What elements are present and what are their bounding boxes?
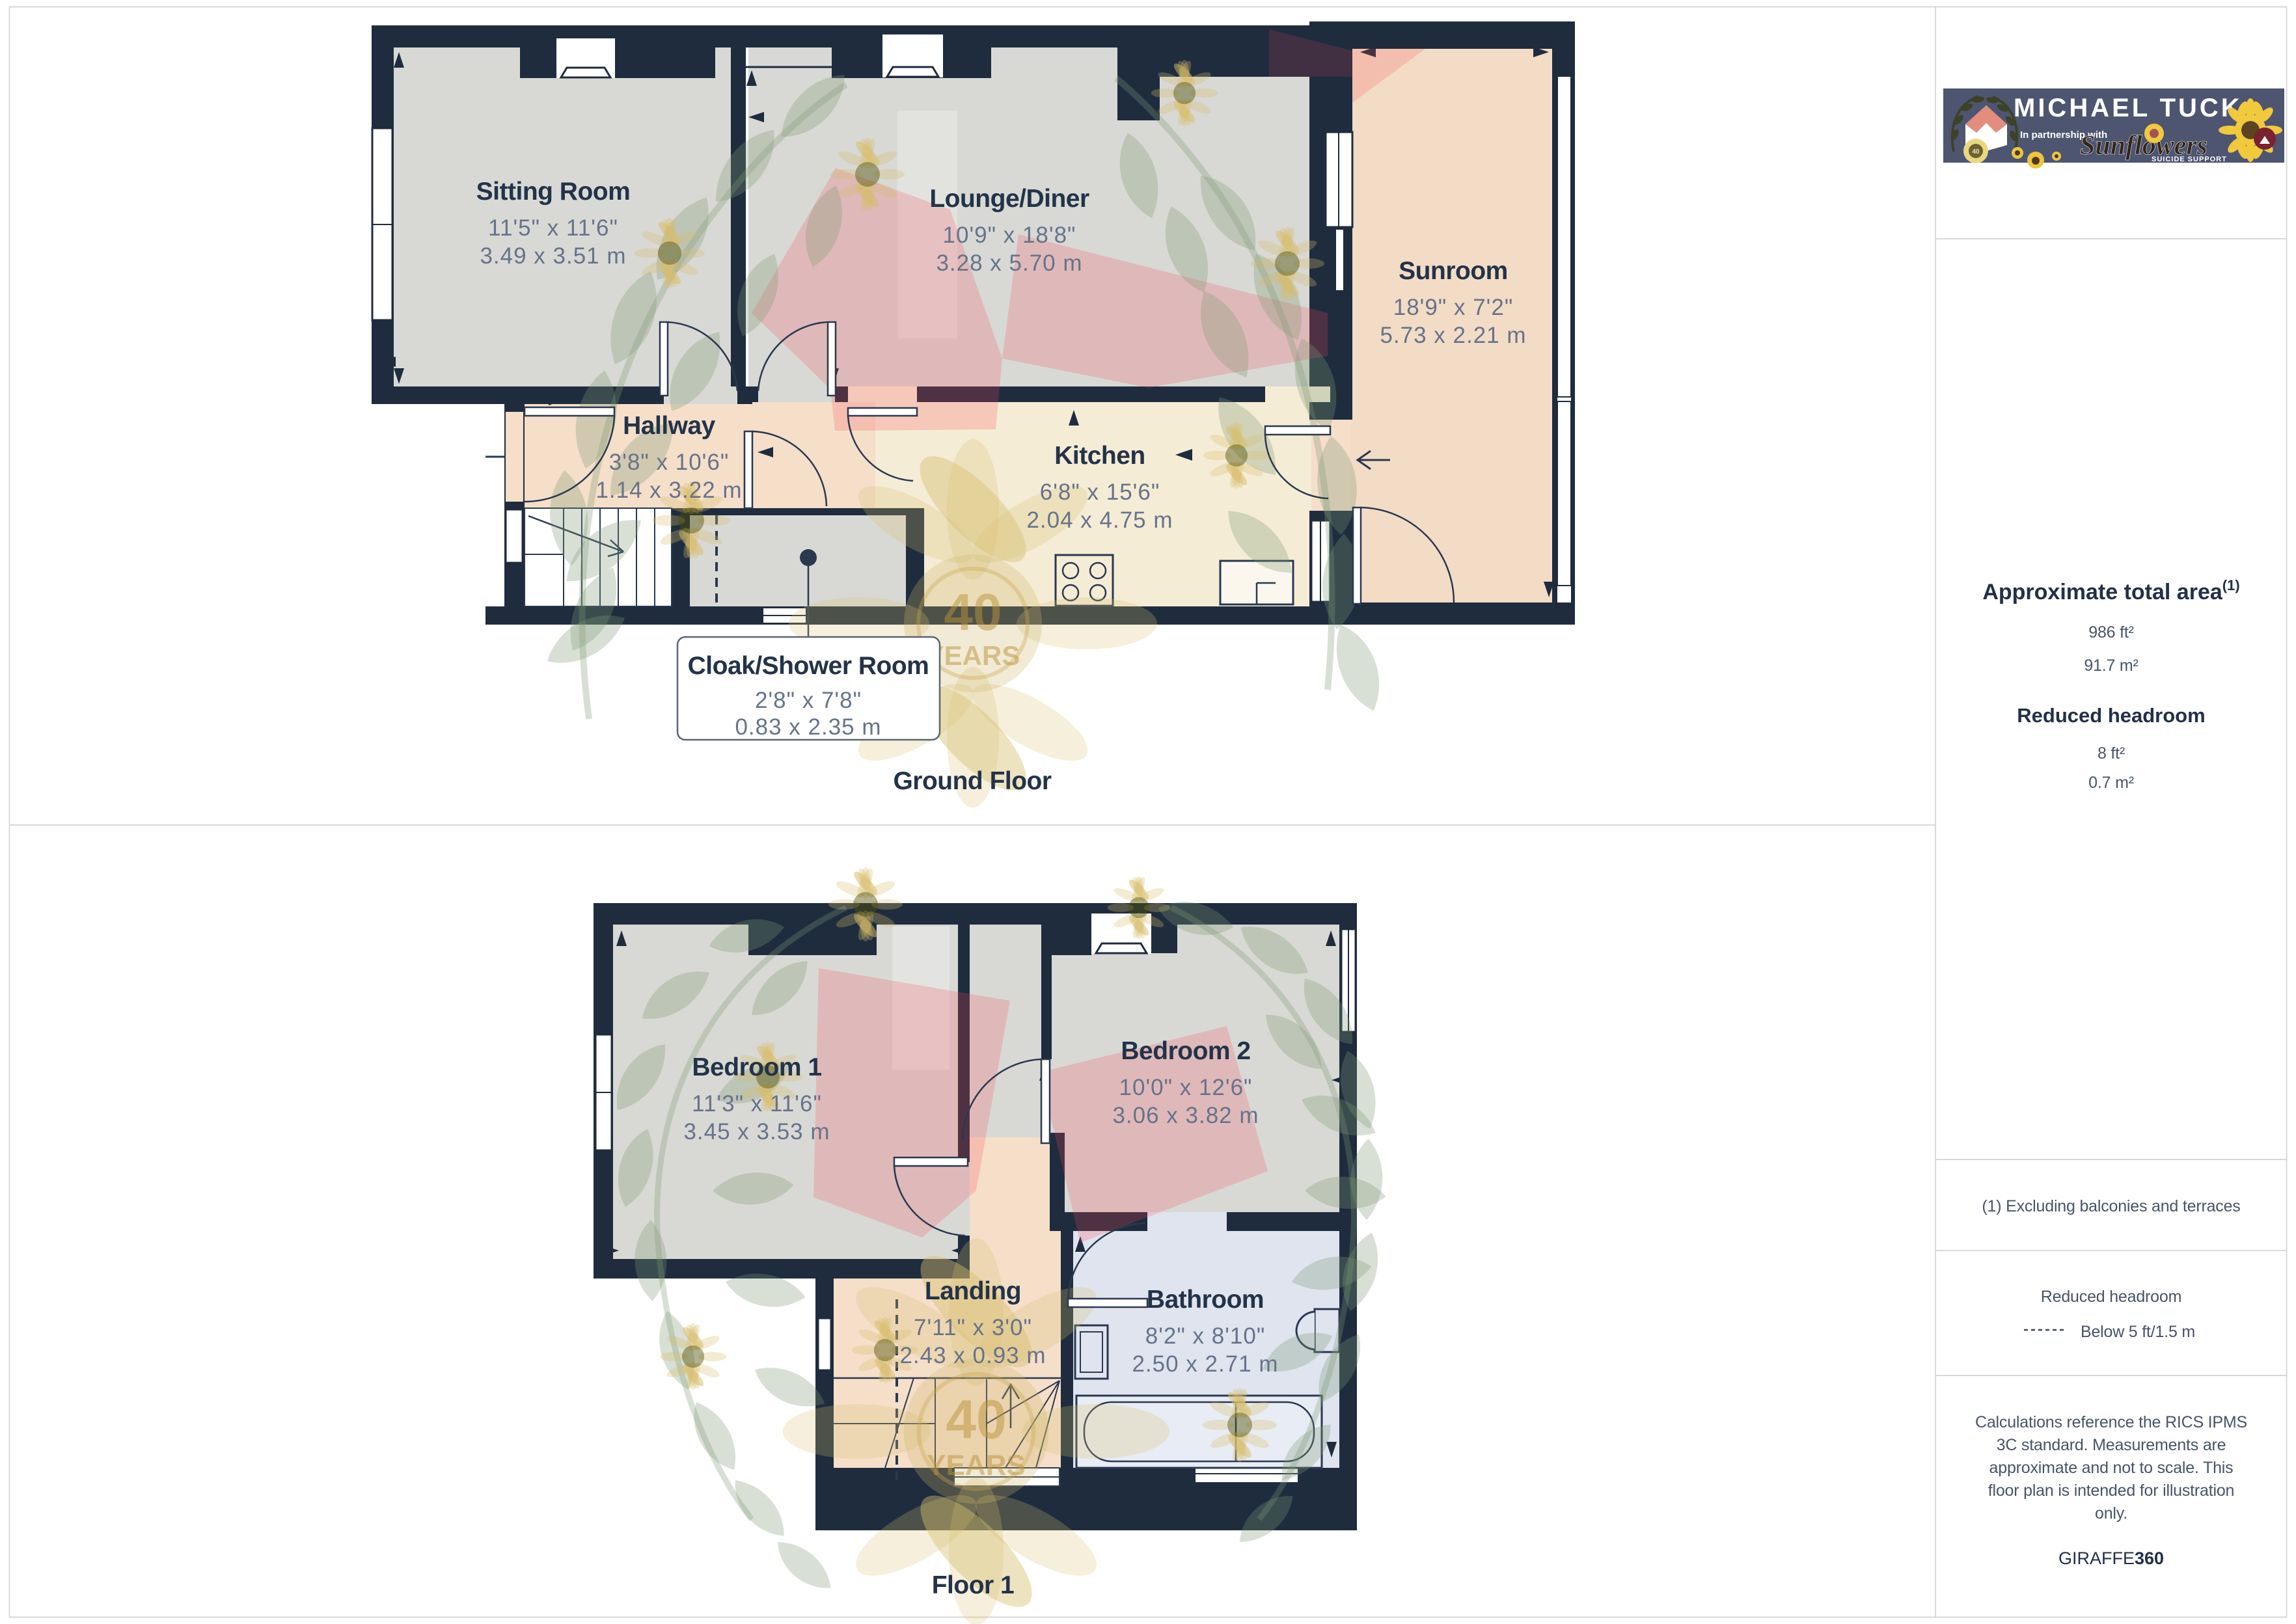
svg-text:Sitting Room: Sitting Room [476,178,631,206]
svg-text:5.73 x 2.21 m: 5.73 x 2.21 m [1380,323,1526,348]
svg-text:Bedroom 1: Bedroom 1 [692,1053,821,1081]
svg-text:Calculations reference the RIC: Calculations reference the RICS IPMS [1975,1413,2247,1431]
svg-text:40: 40 [1972,148,1980,156]
svg-text:11'5" x 11'6": 11'5" x 11'6" [488,215,618,241]
svg-text:3.28 x 5.70 m: 3.28 x 5.70 m [936,250,1082,276]
svg-text:91.7 m²: 91.7 m² [2084,656,2138,675]
svg-text:986 ft²: 986 ft² [2088,623,2133,642]
svg-text:8 ft²: 8 ft² [2098,744,2125,763]
svg-text:0.7 m²: 0.7 m² [2088,774,2134,792]
svg-text:3.45 x 3.53 m: 3.45 x 3.53 m [683,1119,830,1144]
svg-text:2.43 x 0.93 m: 2.43 x 0.93 m [899,1343,1046,1368]
svg-text:10'9" x 18'8": 10'9" x 18'8" [943,223,1076,248]
svg-text:3'8" x 10'6": 3'8" x 10'6" [609,450,730,475]
svg-text:Bedroom 2: Bedroom 2 [1121,1037,1250,1065]
svg-text:SUICIDE SUPPORT: SUICIDE SUPPORT [2152,156,2227,163]
svg-text:8'2" x 8'10": 8'2" x 8'10" [1145,1323,1266,1349]
svg-text:3.49 x 3.51 m: 3.49 x 3.51 m [480,243,626,269]
svg-text:3.06 x 3.82 m: 3.06 x 3.82 m [1112,1103,1259,1128]
svg-text:(1) Excluding balconies and te: (1) Excluding balconies and terraces [1982,1197,2240,1215]
svg-text:3C standard. Measurements are: 3C standard. Measurements are [1997,1436,2226,1454]
svg-text:Sunroom: Sunroom [1399,257,1508,285]
svg-text:1.14 x 3.22 m: 1.14 x 3.22 m [595,478,742,503]
svg-text:2.50 x 2.71 m: 2.50 x 2.71 m [1132,1351,1278,1377]
svg-text:11'3" x 11'6": 11'3" x 11'6" [692,1091,822,1116]
svg-text:Cloak/Shower Room: Cloak/Shower Room [688,652,929,680]
svg-text:Ground Floor: Ground Floor [893,767,1051,795]
svg-text:Lounge/Diner: Lounge/Diner [929,185,1089,213]
svg-text:0.83 x 2.35 m: 0.83 x 2.35 m [735,714,881,740]
svg-text:Kitchen: Kitchen [1054,442,1145,470]
svg-text:Hallway: Hallway [623,412,716,440]
svg-text:Bathroom: Bathroom [1147,1286,1264,1314]
svg-text:approximate and not to scale.: approximate and not to scale. This [1989,1459,2234,1477]
svg-text:2.04 x 4.75 m: 2.04 x 4.75 m [1026,507,1173,533]
svg-text:Floor 1: Floor 1 [932,1571,1015,1599]
svg-text:10'0" x 12'6": 10'0" x 12'6" [1119,1075,1253,1100]
svg-text:Reduced headroom: Reduced headroom [2041,1288,2181,1306]
svg-text:Landing: Landing [925,1277,1021,1305]
svg-text:18'9" x 7'2": 18'9" x 7'2" [1393,295,1514,320]
svg-text:only.: only. [2095,1504,2127,1522]
svg-text:6'8" x 15'6": 6'8" x 15'6" [1040,480,1160,505]
svg-text:floor plan is intended for ill: floor plan is intended for illustration [1988,1482,2235,1500]
svg-text:GIRAFFE360: GIRAFFE360 [2058,1549,2164,1568]
svg-text:Below 5 ft/1.5 m: Below 5 ft/1.5 m [2081,1323,2195,1341]
svg-text:MICHAEL TUCK: MICHAEL TUCK [2014,94,2243,122]
svg-text:7'11" x 3'0": 7'11" x 3'0" [914,1315,1032,1340]
svg-text:2'8" x 7'8": 2'8" x 7'8" [755,688,862,713]
svg-text:Reduced headroom: Reduced headroom [2017,704,2205,727]
svg-text:Approximate total area(1): Approximate total area(1) [1982,577,2239,604]
